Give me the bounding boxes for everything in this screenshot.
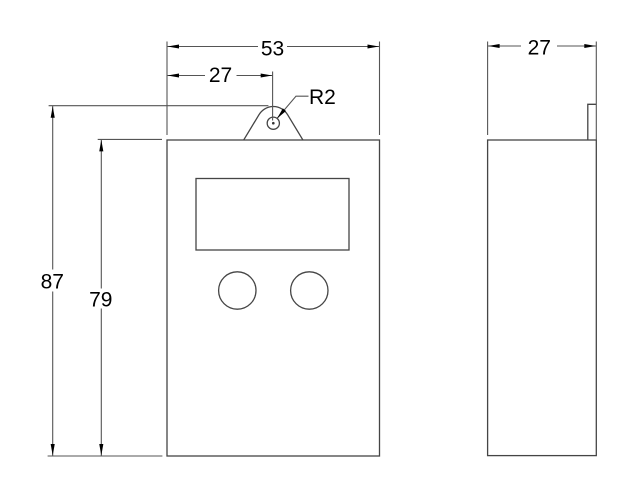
svg-text:27: 27: [209, 64, 232, 87]
svg-text:53: 53: [261, 38, 284, 61]
svg-text:87: 87: [41, 271, 64, 294]
svg-text:27: 27: [528, 37, 551, 60]
svg-text:R2: R2: [309, 86, 336, 109]
svg-text:79: 79: [89, 288, 112, 311]
